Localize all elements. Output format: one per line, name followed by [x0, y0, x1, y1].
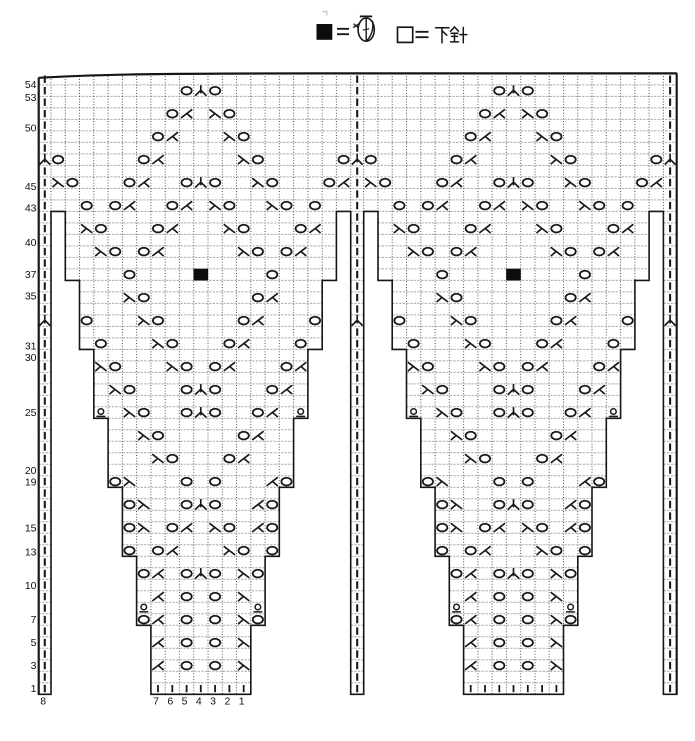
- svg-text:19: 19: [25, 477, 37, 489]
- svg-text:35: 35: [25, 291, 37, 303]
- svg-text:8: 8: [40, 696, 46, 708]
- svg-text:2: 2: [224, 696, 230, 708]
- svg-text:7: 7: [153, 696, 159, 708]
- svg-text:20: 20: [25, 465, 37, 477]
- svg-text:43: 43: [25, 202, 37, 214]
- svg-text:13: 13: [25, 546, 37, 558]
- svg-text:54: 54: [25, 79, 37, 91]
- svg-text:40: 40: [25, 237, 37, 249]
- svg-text:4: 4: [196, 696, 202, 708]
- svg-text:31: 31: [25, 341, 37, 353]
- svg-text:30: 30: [25, 352, 37, 364]
- svg-text:7: 7: [31, 614, 37, 626]
- svg-text:15: 15: [25, 523, 37, 535]
- svg-text:37: 37: [25, 269, 37, 281]
- svg-text:25: 25: [25, 407, 37, 419]
- svg-text:3: 3: [210, 696, 216, 708]
- svg-text:1: 1: [239, 696, 245, 708]
- svg-text:45: 45: [25, 181, 37, 193]
- svg-text:50: 50: [25, 122, 37, 134]
- svg-text:10: 10: [25, 580, 37, 592]
- svg-text:3: 3: [31, 660, 37, 672]
- svg-text:5: 5: [31, 637, 37, 649]
- svg-text:5: 5: [182, 696, 188, 708]
- svg-text:6: 6: [167, 696, 173, 708]
- svg-text:1: 1: [31, 683, 37, 695]
- svg-text:53: 53: [25, 92, 37, 104]
